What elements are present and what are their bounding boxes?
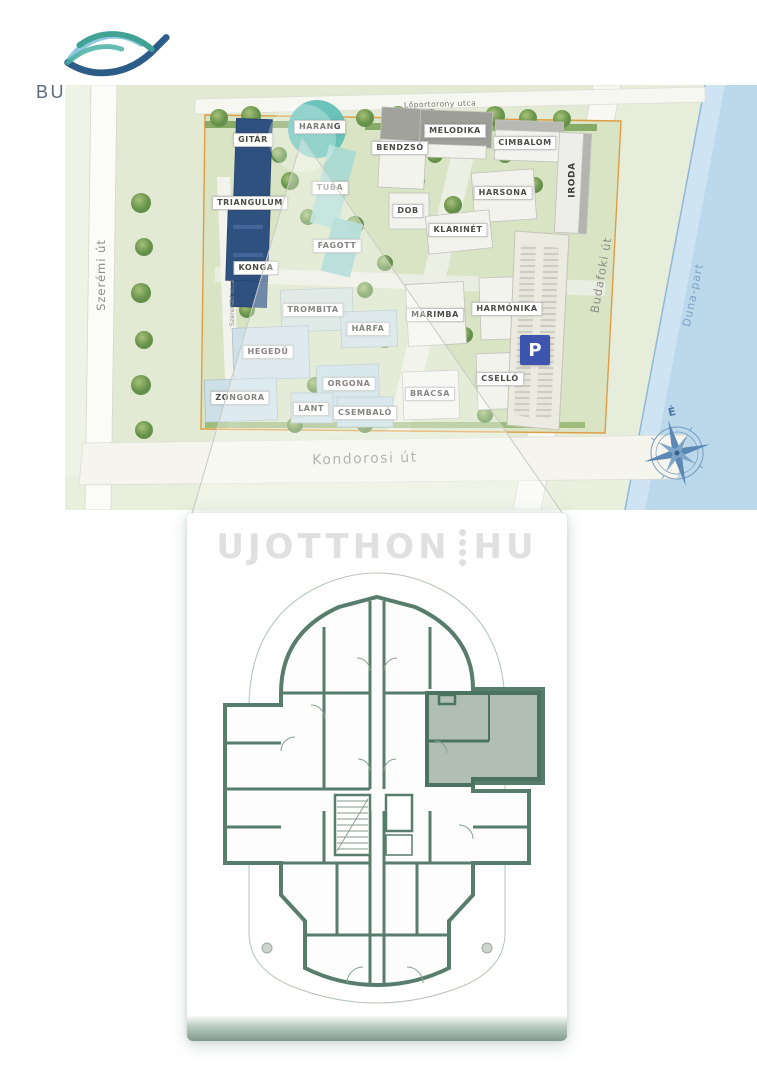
elevator-shaft [386, 795, 412, 831]
building-label-trombita: TROMBITA [282, 303, 343, 317]
building-label-cimbalom: CIMBALOM [493, 136, 556, 150]
street-label-szeremi: Szerémi út [94, 239, 108, 311]
building-label-harmonika: HARMÓNIKA [471, 302, 542, 316]
page: BUDAI WALZER by SISKIN [0, 0, 757, 1080]
building-label-csembalo: CSEMBALÓ [333, 406, 397, 420]
building-label-bendzso: BENDZSÓ [371, 141, 428, 155]
floor-plan-card: UJOTTHON HU [187, 513, 567, 1041]
building-label-triangulum: TRIANGULUM [212, 196, 288, 210]
building-label-dob: DOB [392, 204, 423, 218]
building-label-csello: CSELLÓ [476, 372, 524, 386]
highlighted-unit [427, 693, 539, 785]
parking-lot [507, 231, 569, 430]
building-label-zongora: ZONGORA [210, 391, 269, 405]
logo-wave-icon [57, 24, 175, 80]
building-label-konga: KONGA [233, 261, 278, 275]
parking-badge: P [520, 335, 550, 365]
building-label-harfa: HÁRFA [347, 322, 390, 336]
site-plan-map: Lőportorony utca Szerémi út Szerenád utc… [65, 85, 757, 510]
building-label-tuba: TUBA [312, 181, 349, 195]
building-label-bracsa: BRÁCSA [405, 387, 455, 401]
building-label-fagott: FAGOTT [313, 239, 362, 253]
building-label-lant: LANT [293, 402, 329, 416]
floor-plan-drawing [187, 543, 567, 1041]
street-label-loportorony: Lőportorony utca [404, 99, 476, 110]
building-label-gitar: GITÁR [233, 133, 273, 147]
street-label-kondorosi: Kondorosi út [312, 450, 418, 469]
building-label-harang: HARANG [294, 120, 346, 134]
building-label-orgona: ORGONA [323, 377, 376, 391]
building-label-hegedu: HEGEDŰ [243, 345, 294, 359]
building-label-marimba: MARIMBA [406, 308, 464, 322]
street-label-szerenad: Szerenád utca [228, 280, 236, 327]
building-label-klarinet: KLARINÉT [428, 223, 487, 237]
building-label-iroda: IRODA [566, 158, 579, 201]
building-label-melodika: MELODIKA [424, 124, 486, 138]
building-label-harsona: HARSONA [474, 186, 533, 200]
